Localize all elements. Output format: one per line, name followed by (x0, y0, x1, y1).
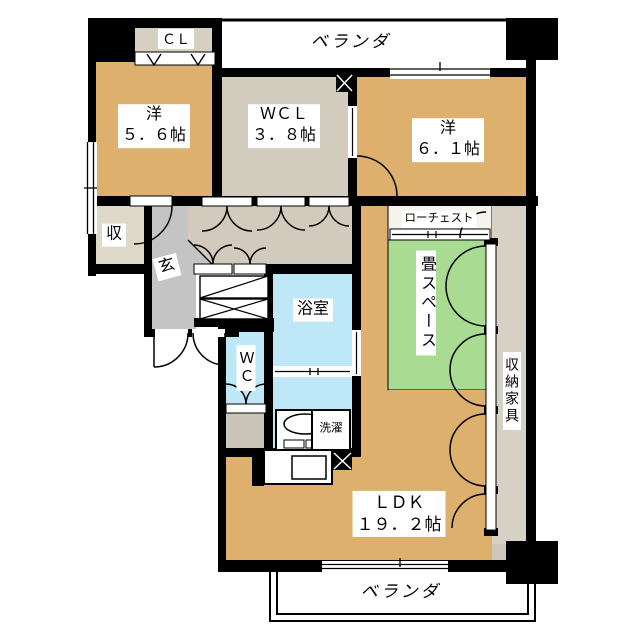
storage-furniture-label: 収納家具 (503, 352, 521, 430)
tatami-space-floor (388, 240, 492, 390)
wall-west-upper (88, 18, 96, 146)
veranda-bottom-label: ベランダ (355, 580, 449, 604)
veranda-top-label: ベランダ (305, 30, 399, 54)
kitchen-sink (292, 456, 326, 479)
ldk-label: ＬＤＫ １９．２帖 (353, 491, 446, 537)
ldk-under-tatami-floor (388, 390, 492, 452)
wall-bath-north (264, 264, 361, 274)
low-chest-label: ローチェスト (402, 211, 477, 228)
bathroom-label: 浴室 (293, 299, 333, 322)
storage-door-plane (486, 244, 496, 530)
western-room-1-name: 洋 (122, 105, 186, 126)
wall-east (526, 60, 536, 546)
wall-room2-south (352, 196, 538, 206)
wcl-door-panel (257, 197, 305, 206)
window-ldk-south (322, 561, 448, 572)
storage-small-label: 収 (102, 224, 126, 247)
wall-hall-east (352, 196, 361, 454)
pillar-bottom-right (506, 541, 558, 584)
laundry-label: 洗濯 (317, 421, 346, 438)
wcl-door-panel (309, 197, 349, 206)
under-toilet-area (226, 413, 264, 449)
ldk-name: ＬＤＫ (357, 492, 442, 514)
washbasin-drawer (284, 440, 304, 448)
wall-kitchen-cap (252, 448, 264, 486)
western-room-2-size: ６．１帖 (416, 140, 480, 161)
walk-in-closet-name: ＷＣＬ (252, 105, 316, 126)
entrance-door-gap (192, 329, 225, 337)
wcl-door-panel (202, 197, 252, 206)
wall-storage-south (88, 264, 152, 274)
entrance-door-arc-left (154, 333, 188, 367)
walk-in-closet-size: ３．８帖 (252, 126, 316, 147)
closet-door-strip (135, 52, 215, 65)
western-room-1-label: 洋 ５．６帖 (118, 104, 190, 148)
walk-in-closet-label: ＷＣＬ ３．８帖 (248, 104, 320, 148)
tatami-space-label: 畳スペース (416, 251, 436, 356)
ldk-size: １９．２帖 (357, 514, 442, 536)
toilet-door-panel (226, 404, 266, 413)
hall-closet-panel (194, 264, 232, 274)
closet-label: ＣＬ (158, 29, 194, 49)
ldk-passage-floor (361, 204, 392, 452)
western-room-2-name: 洋 (416, 119, 480, 140)
western-room-2-label: 洋 ６．１帖 (412, 118, 484, 162)
toilet-label: ＷＣ (237, 345, 256, 391)
wall-entrance-west (144, 196, 152, 337)
western-room-1-size: ５．６帖 (122, 126, 186, 147)
entrance-door-gap (155, 329, 188, 337)
floor-plan: ベランダ ＣＬ 洋 ５．６帖 ＷＣＬ ３．８帖 洋 ６．１帖 収 玄 浴室 ＷＣ… (0, 0, 640, 640)
hall-closet-panel (234, 264, 266, 274)
wall-room1-wcl (212, 18, 222, 206)
room1-door-panel (130, 196, 172, 206)
pillar-top-right (506, 18, 558, 60)
